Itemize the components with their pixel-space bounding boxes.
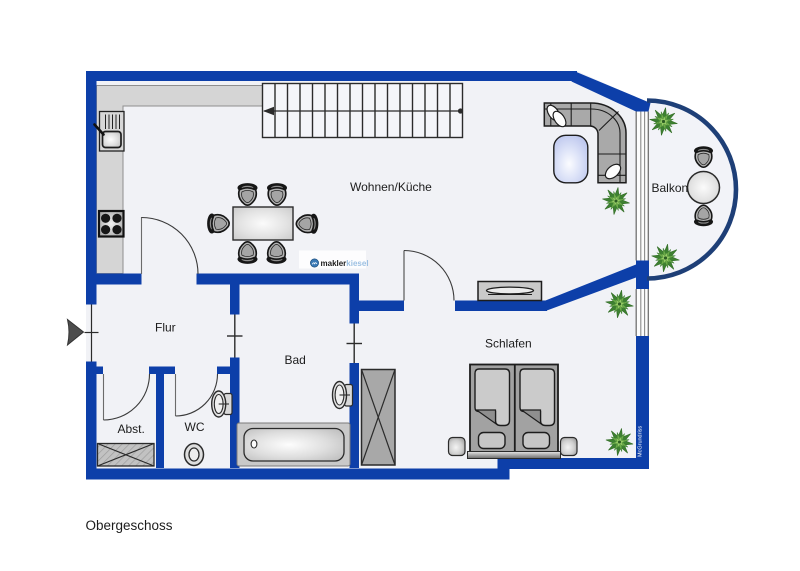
svg-text:McGrundriss: McGrundriss bbox=[638, 426, 644, 457]
svg-text:Wohnen/Küche: Wohnen/Küche bbox=[350, 180, 432, 194]
svg-text:WC: WC bbox=[185, 420, 205, 434]
svg-text:Bad: Bad bbox=[285, 353, 306, 367]
svg-text:Schlafen: Schlafen bbox=[485, 337, 532, 351]
svg-text:maklerkiesel: maklerkiesel bbox=[321, 259, 369, 268]
svg-text:Flur: Flur bbox=[155, 321, 176, 335]
svg-text:Obergeschoss: Obergeschoss bbox=[86, 518, 173, 533]
svg-text:Abst.: Abst. bbox=[118, 422, 145, 436]
svg-text:Balkon: Balkon bbox=[652, 181, 689, 195]
